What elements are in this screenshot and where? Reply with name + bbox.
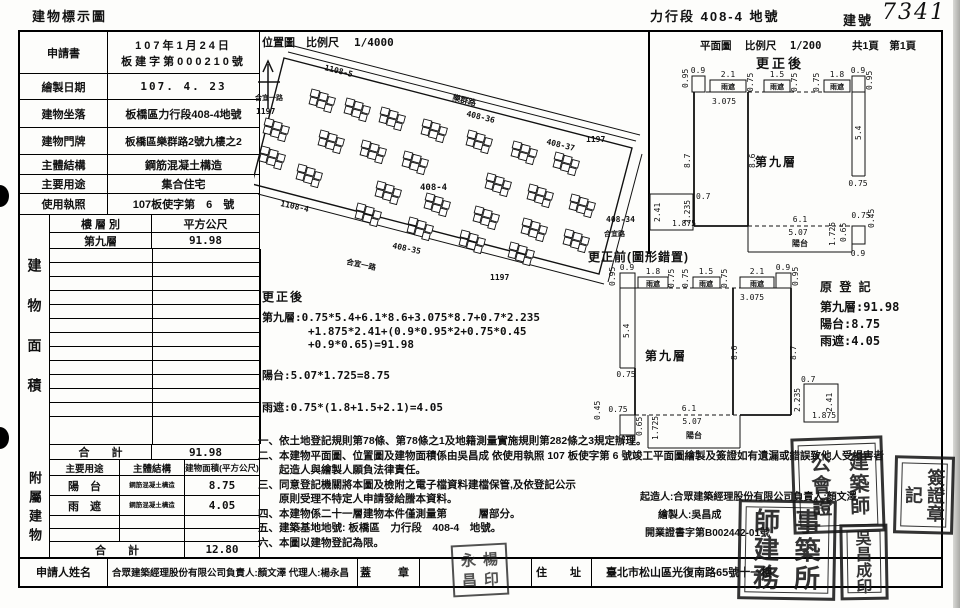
applicant-label: 申請人姓名 — [20, 558, 108, 586]
page-count: 共1頁 第1頁 — [852, 38, 916, 53]
seal-char: 築 — [787, 537, 828, 564]
svg-text:0.9: 0.9 — [776, 263, 791, 272]
orig-reg-title: 原 登 記 — [820, 278, 899, 295]
svg-text:合宜一路: 合宜一路 — [346, 256, 378, 272]
seal-char: 證 — [926, 486, 944, 504]
application-number: 板建字第000210號 — [121, 53, 246, 69]
svg-text:3.075: 3.075 — [740, 293, 764, 302]
empty-area-rows — [50, 249, 260, 444]
orig-reg-line: 雨遮:4.05 — [820, 332, 899, 349]
calc-block: 更正後 第九層:0.75*5.4+6.1*8.6+3.075*8.7+0.7*2… — [262, 288, 540, 415]
svg-text:0.75: 0.75 — [848, 179, 867, 188]
svg-text:3.075: 3.075 — [712, 97, 736, 106]
svg-text:0.9: 0.9 — [620, 263, 635, 272]
area-total-value: 91.98 — [152, 444, 260, 460]
calc-line: 第九層:0.75*5.4+6.1*8.6+3.075*8.7+0.7*2.235 — [262, 309, 540, 325]
svg-text:5.07: 5.07 — [682, 417, 701, 426]
row-value: 107年1月24日 板建字第000210號 — [108, 32, 260, 74]
svg-text:0.95: 0.95 — [681, 69, 690, 88]
svg-text:0.75: 0.75 — [812, 73, 821, 92]
annex-structure: 鋼筋混凝土構造 — [120, 496, 185, 516]
building-number-value: 7341 — [882, 0, 946, 25]
svg-text:0.45: 0.45 — [593, 401, 602, 420]
svg-text:0.75: 0.75 — [720, 269, 729, 288]
col-area: 平方公尺 — [152, 215, 260, 233]
svg-text:1108-4: 1108-4 — [280, 199, 310, 214]
area-cell: 91.98 — [152, 233, 260, 249]
scanned-document: 建物標示圖 力行段 408-4 地號 建號 7341 申請書 107年1月24日… — [0, 0, 960, 608]
svg-text:0.75: 0.75 — [681, 269, 690, 288]
site-plan-scale: 1/4000 — [354, 36, 394, 49]
annex-empty — [50, 516, 120, 529]
seal-char: 章 — [925, 504, 943, 522]
building-number-label: 建號 — [843, 10, 873, 29]
seal-char: 所 — [786, 565, 827, 592]
svg-text:1.5: 1.5 — [770, 70, 785, 79]
annex-use: 雨 遮 — [50, 496, 120, 516]
row-label: 繪製日期 — [20, 74, 108, 100]
seal-char: 事 — [787, 509, 828, 536]
svg-text:5.07: 5.07 — [788, 228, 807, 237]
annex-empty — [185, 516, 260, 529]
svg-text:0.95: 0.95 — [865, 71, 874, 90]
annex-empty — [120, 516, 185, 529]
svg-text:2.41: 2.41 — [653, 203, 662, 222]
svg-text:1.875: 1.875 — [812, 411, 836, 420]
svg-text:408-35: 408-35 — [392, 241, 422, 256]
land-section-header: 力行段 408-4 地號 — [650, 6, 779, 25]
svg-text:1.5: 1.5 — [699, 267, 714, 276]
svg-text:408-4: 408-4 — [420, 183, 448, 193]
seal-char: 吳 — [855, 532, 871, 548]
seal-char: 建 — [846, 451, 867, 474]
svg-text:6.1: 6.1 — [793, 215, 808, 224]
svg-text:1108-5: 1108-5 — [324, 63, 354, 79]
svg-text:0.75: 0.75 — [667, 269, 676, 288]
seal-char: 永 — [457, 553, 480, 569]
seal-char: 會 — [809, 474, 830, 497]
original-registration: 原 登 記 第九層:91.98 陽台:8.75 雨遮:4.05 — [820, 278, 899, 349]
seal-char: 昌 — [856, 548, 872, 564]
svg-text:1.725: 1.725 — [828, 222, 837, 246]
svg-text:0.7: 0.7 — [696, 192, 711, 201]
floor-cell: 第九層 — [50, 233, 152, 249]
svg-text:8.7: 8.7 — [789, 345, 798, 360]
building-clusters — [257, 89, 596, 266]
svg-text:0.75: 0.75 — [790, 73, 799, 92]
annex-area: 8.75 — [185, 476, 260, 496]
svg-text:雨遮: 雨遮 — [770, 82, 784, 91]
svg-text:0.9: 0.9 — [851, 249, 866, 258]
col-floor: 樓 層 別 — [50, 215, 152, 233]
agent-seal: 永楊昌印 — [451, 543, 510, 598]
architect-office-seal: 師事建築務所 — [737, 499, 837, 601]
annex-empty — [50, 529, 120, 542]
svg-text:5.4: 5.4 — [854, 125, 863, 140]
applicant-value: 合眾建築經理股份有限公司負責人:顏文澤 代理人:楊永昌 — [108, 558, 358, 586]
svg-text:雨遮: 雨遮 — [830, 82, 844, 91]
drafter-seal: 吳昌成印 — [839, 524, 888, 601]
svg-text:0.75: 0.75 — [608, 405, 627, 414]
svg-text:雨遮: 雨遮 — [721, 82, 735, 91]
seal-char: 師 — [847, 495, 868, 518]
svg-text:1197: 1197 — [490, 273, 509, 282]
plan-scale-label: 比例尺 — [745, 40, 777, 52]
application-date: 107年1月24日 — [135, 37, 232, 53]
svg-text:2.1: 2.1 — [750, 267, 765, 276]
seal-char: 簽 — [926, 468, 944, 486]
area-total-label: 合 計 — [50, 444, 152, 460]
seal-char: 記 — [904, 485, 922, 503]
svg-text:2.1: 2.1 — [721, 70, 736, 79]
row-label: 申請書 — [20, 32, 108, 74]
svg-text:0.9: 0.9 — [851, 66, 866, 75]
svg-text:2.235: 2.235 — [683, 200, 692, 224]
annex-empty — [185, 529, 260, 542]
calc-title: 更正後 — [262, 288, 540, 305]
annex-col-area: 建物面積(平方公尺) — [185, 460, 260, 476]
orig-reg-line: 陽台:8.75 — [820, 315, 899, 332]
svg-text:第九層: 第九層 — [645, 348, 687, 363]
svg-text:雨遮: 雨遮 — [646, 279, 660, 288]
calc-line: +1.875*2.41+(0.9*0.95*2+0.75*0.45 — [308, 325, 540, 338]
site-plan-title: 位置圖 — [262, 35, 295, 49]
row-label: 主體結構 — [20, 155, 108, 175]
svg-text:合宜一路: 合宜一路 — [254, 93, 284, 102]
svg-text:雨遮: 雨遮 — [750, 279, 764, 288]
building-site: 板橋區力行段408-4地號 — [108, 100, 260, 128]
annex-total-label: 合 計 — [50, 542, 185, 558]
svg-text:陽台: 陽台 — [792, 238, 808, 248]
seal-char: 成 — [856, 564, 872, 580]
site-plan-scale-label: 比例尺 — [306, 35, 339, 49]
punch-hole — [0, 427, 9, 449]
svg-text:2.235: 2.235 — [793, 388, 802, 412]
punch-hole — [0, 185, 9, 207]
seal-char: 築 — [847, 473, 868, 496]
svg-text:1.8: 1.8 — [830, 70, 845, 79]
svg-text:5.4: 5.4 — [622, 323, 631, 338]
svg-text:0.95: 0.95 — [791, 267, 800, 286]
structure-type: 鋼筋混凝土構造 — [108, 155, 260, 175]
plan-before-dims: 0.9 0.95 1.8 雨遮 0.75 1.5 雨遮 0.75 0.75 2.… — [593, 263, 836, 446]
seal-char: 務 — [745, 564, 786, 591]
seal-char: 印 — [480, 571, 503, 587]
calc-line: 雨遮:0.75*(1.8+1.5+2.1)=4.05 — [262, 399, 540, 415]
scan-edge — [953, 0, 960, 608]
annex-structure: 鋼筋混凝土構造 — [120, 476, 185, 496]
calc-line: 陽台:5.07*1.725=8.75 — [262, 367, 540, 383]
annex-area: 4.05 — [185, 496, 260, 516]
doc-title: 建物標示圖 — [32, 6, 107, 25]
address-label: 住 址 — [532, 558, 592, 586]
svg-text:1197: 1197 — [256, 107, 275, 116]
seal-char: 建 — [746, 536, 787, 563]
annex-use: 陽 台 — [50, 476, 120, 496]
annex-empty — [120, 529, 185, 542]
draw-date: 107. 4. 23 — [108, 74, 260, 100]
seal-char: 印 — [856, 580, 872, 596]
svg-text:1.8: 1.8 — [646, 267, 661, 276]
svg-text:0.95: 0.95 — [608, 267, 617, 286]
row-label: 使用執照 — [20, 194, 108, 215]
svg-text:0.45: 0.45 — [867, 209, 876, 228]
svg-text:408-34: 408-34 — [606, 215, 635, 224]
row-label: 主要用途 — [20, 175, 108, 194]
svg-text:408-37: 408-37 — [546, 137, 576, 153]
seal-label: 蓋 章 — [358, 558, 420, 586]
annex-side-label: 附屬建物 — [20, 460, 50, 558]
svg-text:0.65: 0.65 — [839, 223, 848, 242]
svg-text:第九層: 第九層 — [755, 154, 797, 169]
plan-after-dims: 0.9 0.95 2.1 雨遮 3.075 0.75 1.5 雨遮 0.75 0… — [653, 66, 876, 258]
floor-plan-after: 0.9 0.95 2.1 雨遮 3.075 0.75 1.5 雨遮 0.75 0… — [648, 60, 888, 260]
plan-title: 平面圖 — [700, 40, 732, 52]
seal-char: 楊 — [479, 551, 502, 567]
svg-text:雨遮: 雨遮 — [699, 279, 713, 288]
plan-scale: 1/200 — [790, 40, 822, 52]
registration-seal: 簽證章記 — [893, 455, 955, 535]
svg-text:1197: 1197 — [586, 135, 605, 144]
seal-char: 昌 — [458, 572, 481, 588]
svg-text:6.1: 6.1 — [682, 404, 697, 413]
svg-text:樂群路: 樂群路 — [451, 92, 479, 108]
svg-text:0.75: 0.75 — [746, 73, 755, 92]
seal-char: 師 — [746, 508, 787, 535]
use-permit: 107板使字第 6 號 — [108, 194, 260, 215]
svg-text:2.41: 2.41 — [825, 393, 834, 412]
svg-text:8.7: 8.7 — [683, 153, 692, 168]
svg-text:0.9: 0.9 — [691, 66, 706, 75]
svg-text:8.6: 8.6 — [730, 345, 739, 360]
svg-text:0.7: 0.7 — [801, 375, 816, 384]
plan-header: 平面圖 比例尺 1/200 — [700, 38, 821, 53]
column-divider — [152, 249, 153, 444]
annex-col-structure: 主體結構 — [120, 460, 185, 476]
annex-col-use: 主要用途 — [50, 460, 120, 476]
building-address: 板橋區樂群路2號九樓之2 — [108, 128, 260, 155]
svg-text:合宜路: 合宜路 — [603, 229, 626, 238]
svg-text:0.75: 0.75 — [616, 370, 635, 379]
calc-line: +0.9*0.65)=91.98 — [308, 338, 540, 351]
floor-plan-before: 0.9 0.95 1.8 雨遮 0.75 1.5 雨遮 0.75 0.75 2.… — [586, 260, 856, 456]
row-label: 建物門牌 — [20, 128, 108, 155]
row-label: 建物坐落 — [20, 100, 108, 128]
seal-char: 公 — [808, 452, 829, 475]
orig-reg-line: 第九層:91.98 — [820, 298, 899, 315]
main-use: 集合住宅 — [108, 175, 260, 194]
annex-total-value: 12.80 — [185, 542, 260, 558]
drafter-line: 繪製人:吳昌成 — [658, 506, 721, 521]
area-table-side-label: 建物面積 — [20, 215, 50, 460]
